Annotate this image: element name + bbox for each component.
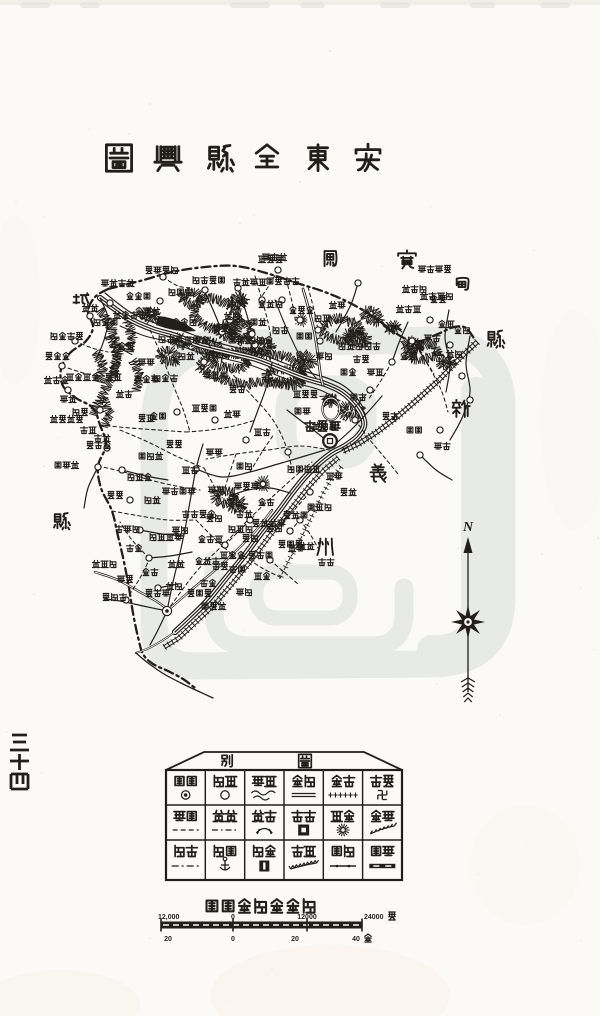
svg-text:24000: 24000 xyxy=(364,914,384,921)
svg-text:20: 20 xyxy=(291,936,299,943)
svg-text:0: 0 xyxy=(231,914,235,921)
svg-text:0: 0 xyxy=(231,936,235,943)
svg-text:12,000: 12,000 xyxy=(158,914,180,921)
svg-text:12000: 12000 xyxy=(297,914,317,921)
svg-text:20: 20 xyxy=(164,936,172,943)
svg-text:N: N xyxy=(462,520,474,535)
svg-text:40: 40 xyxy=(352,936,360,943)
